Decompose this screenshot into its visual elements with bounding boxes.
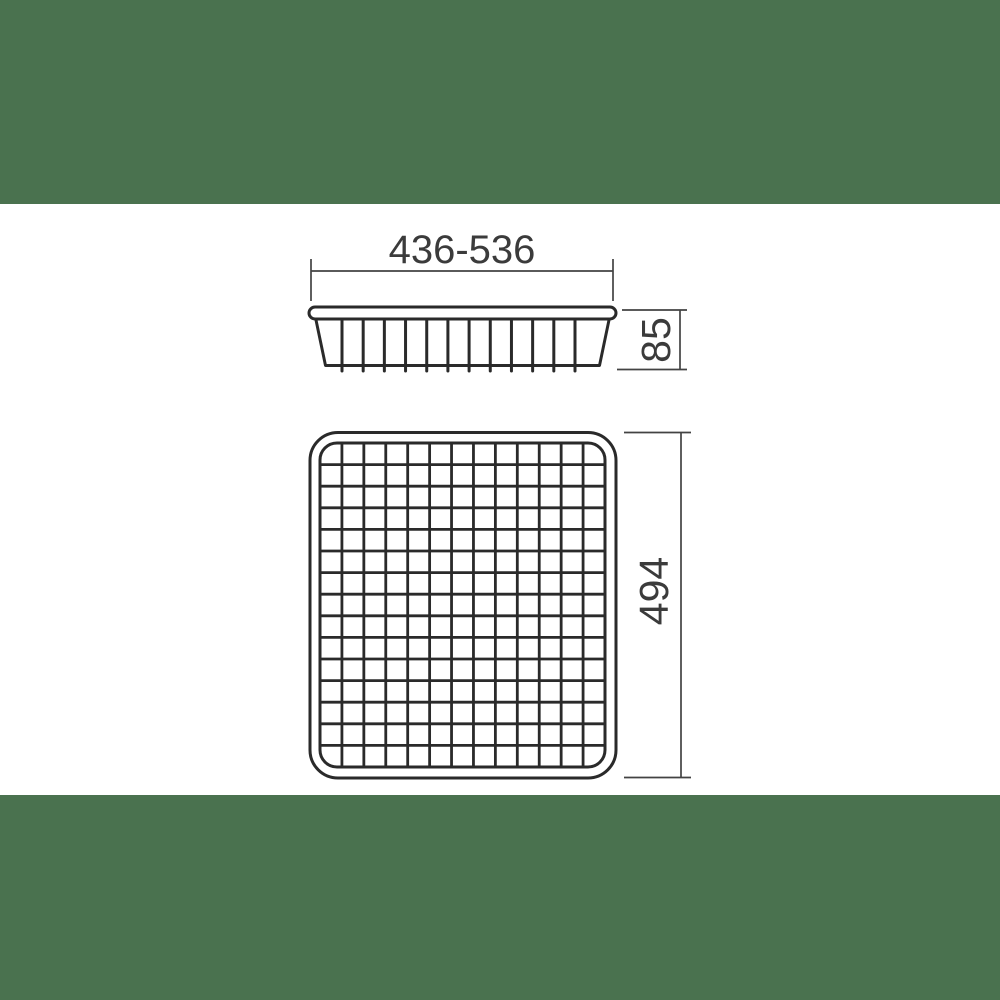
technical-drawing: 436-536 85 494 xyxy=(0,0,1000,1000)
width-dimension-label: 436-536 xyxy=(389,228,536,272)
basket-side-rim xyxy=(309,307,616,319)
basket-top-view xyxy=(310,433,616,779)
depth-dimension-label: 494 xyxy=(631,557,677,625)
basket-side-body xyxy=(316,320,609,366)
height-dimension-label: 85 xyxy=(633,317,679,363)
basket-side-view xyxy=(309,307,616,371)
width-dimension: 436-536 xyxy=(311,228,613,301)
height-dimension: 85 xyxy=(617,310,687,370)
depth-dimension: 494 xyxy=(624,433,691,778)
page: 436-536 85 494 xyxy=(0,0,1000,1000)
